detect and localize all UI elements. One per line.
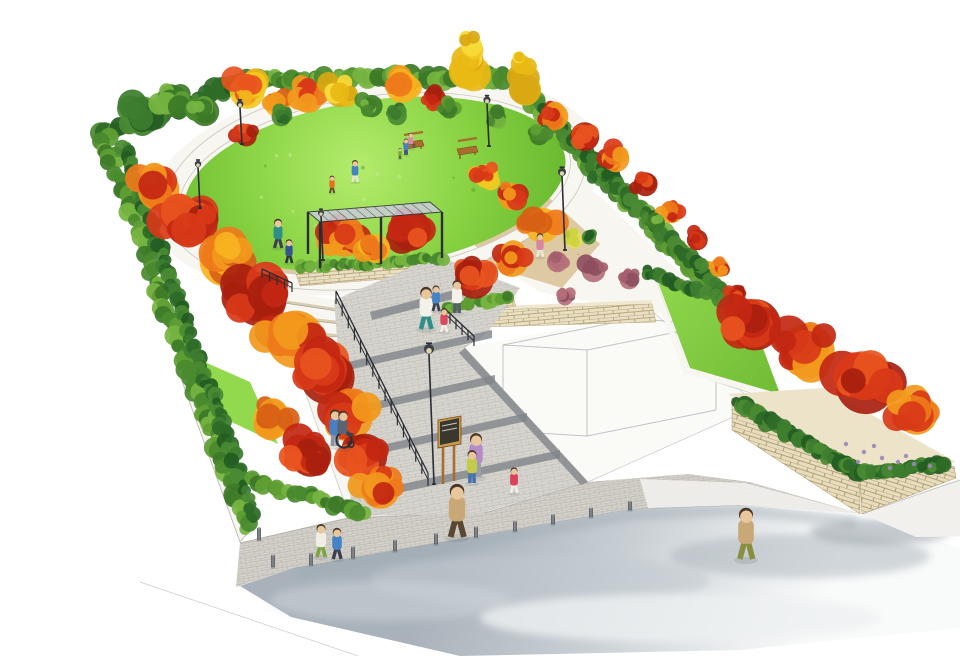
watercolor-wash bbox=[480, 594, 880, 642]
lavender-plant bbox=[904, 454, 908, 458]
watercolor-wash bbox=[270, 581, 510, 621]
tree bbox=[570, 122, 599, 151]
park-illustration: Watercolor perspective rendering of an a… bbox=[40, 16, 960, 656]
tree bbox=[687, 225, 708, 250]
tree bbox=[449, 31, 492, 92]
street bbox=[140, 505, 960, 656]
lavender-plant bbox=[928, 464, 932, 468]
lavender-plant bbox=[862, 450, 866, 454]
tree bbox=[148, 83, 191, 118]
tree bbox=[629, 171, 657, 196]
lavender-plant bbox=[912, 462, 916, 466]
lavender-plant bbox=[856, 460, 860, 464]
lavender-plant bbox=[880, 456, 884, 460]
lavender-plant bbox=[888, 466, 892, 470]
lavender-plant bbox=[844, 442, 848, 446]
scene-canvas bbox=[40, 16, 960, 656]
tree bbox=[556, 287, 576, 305]
tree bbox=[507, 51, 541, 105]
lavender-plant bbox=[872, 444, 876, 448]
tree bbox=[497, 181, 528, 210]
lavender-plant bbox=[896, 460, 900, 464]
